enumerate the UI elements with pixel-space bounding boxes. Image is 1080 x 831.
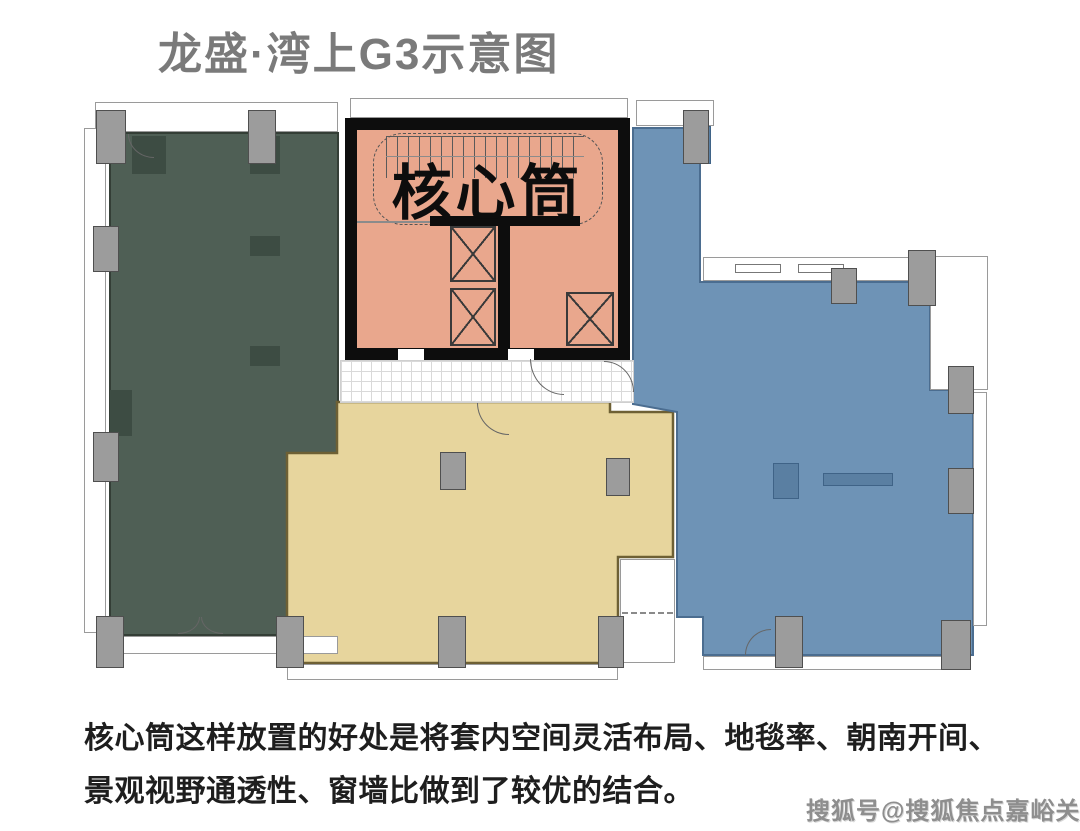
interior-counter	[823, 473, 893, 486]
door-opening	[398, 349, 424, 360]
wall-pier	[773, 463, 799, 499]
description-line-1: 核心筒这样放置的好处是将套内空间灵活布局、地毯率、朝南开间、	[84, 712, 999, 765]
zone-east-blue	[633, 128, 973, 655]
column	[93, 226, 119, 272]
elevator-shaft	[450, 288, 496, 346]
column	[96, 616, 124, 668]
column	[775, 616, 803, 668]
wall-pier	[110, 390, 132, 436]
watermark: 搜狐号@搜狐焦点嘉峪关站	[806, 791, 1080, 826]
column	[276, 616, 304, 668]
column	[606, 458, 630, 496]
elevator-shaft	[450, 226, 496, 282]
window-sill	[735, 264, 781, 273]
column	[93, 432, 119, 482]
wall-pier	[250, 346, 280, 366]
page-title: 龙盛·湾上G3示意图	[158, 18, 559, 82]
core-wall	[498, 226, 510, 350]
stair-recess	[620, 559, 675, 663]
window-band-bottom-east	[703, 656, 943, 670]
column	[948, 468, 974, 514]
column	[440, 452, 466, 490]
window-band-left	[84, 128, 106, 633]
tiled-corridor	[340, 360, 634, 403]
column	[908, 250, 936, 306]
column	[948, 366, 974, 414]
window-band-right	[973, 392, 987, 626]
window-band-top-west	[95, 102, 338, 132]
column	[438, 616, 466, 668]
column	[941, 620, 971, 670]
page: { "title": "龙盛·湾上G3示意图", "plan": { "core…	[0, 0, 1080, 831]
dashed-opening-line	[622, 612, 673, 614]
column	[96, 110, 126, 164]
wall-pier	[250, 236, 280, 256]
column	[683, 110, 709, 164]
column	[598, 616, 624, 668]
window-band-top-core	[350, 98, 628, 118]
column	[248, 110, 276, 164]
core-label: 核心筒	[345, 162, 630, 226]
elevator-shaft	[566, 292, 614, 346]
column	[831, 268, 857, 304]
